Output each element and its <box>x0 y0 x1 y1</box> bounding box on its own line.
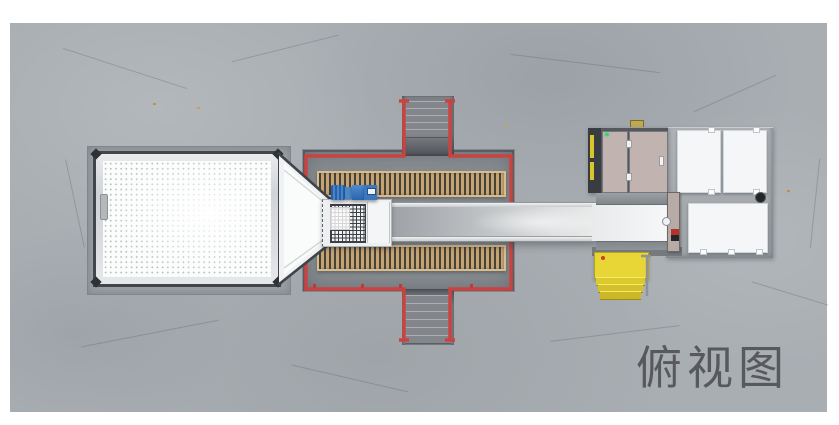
door-hinge <box>626 173 632 181</box>
control-cabinet <box>588 127 668 193</box>
emergency-stop-button <box>671 229 679 235</box>
access-panel-top-right <box>723 130 767 193</box>
green-indicator-light <box>605 133 609 137</box>
stairwell-bottom <box>402 289 454 345</box>
floor-crack <box>63 48 187 89</box>
yellow-stair-step <box>600 291 641 300</box>
infeed-hood-top <box>596 193 668 205</box>
deck-access-hole <box>755 192 766 203</box>
floor-speck <box>197 107 200 109</box>
floor-crack <box>752 281 829 305</box>
walkway-grating-bottom <box>317 245 506 271</box>
cabinet-yellow-strip <box>590 135 594 158</box>
conveyor-belt <box>374 202 602 242</box>
cabinet-yellow-strip <box>590 162 594 180</box>
access-panel-top-left <box>677 130 721 193</box>
cabinet-door-left <box>602 131 628 193</box>
machine-infeed-belt <box>592 204 668 241</box>
railing-post <box>361 284 364 288</box>
railing-post <box>399 284 402 288</box>
panel-latch <box>700 249 707 255</box>
panel-latch <box>708 127 715 133</box>
floor-crack <box>694 75 777 113</box>
feeder-grate-cover <box>330 207 350 230</box>
stairwell-top <box>402 96 454 156</box>
hopper-perforated-floor <box>103 161 271 277</box>
hopper-handle <box>100 194 108 220</box>
platform-marker <box>601 256 605 260</box>
stair-handrail <box>639 254 653 298</box>
belt-surface <box>374 207 602 237</box>
view-label: 俯视图 <box>636 332 789 398</box>
floor-crack <box>65 159 85 247</box>
hopper-frame <box>93 151 281 287</box>
floor-speck <box>787 190 790 192</box>
panel-latch <box>753 127 760 133</box>
screw-feeder-housing <box>322 199 392 247</box>
top-view-scene: 俯视图 <box>0 0 839 425</box>
motor-ribbed-body <box>331 185 345 200</box>
stairwell-shadow <box>402 134 454 156</box>
panel-latch <box>756 249 763 255</box>
access-panel-bottom <box>688 203 768 253</box>
panel-latch <box>708 189 715 195</box>
stair-step <box>405 335 451 344</box>
door-hinge <box>626 140 632 148</box>
infeed-hood-bottom <box>596 241 668 251</box>
gearbox <box>352 185 364 200</box>
floor-crack <box>81 320 219 348</box>
railing-post <box>313 284 316 288</box>
floor-speck <box>153 103 156 105</box>
floor-crack <box>810 159 820 249</box>
panel-latch <box>728 249 735 255</box>
floor-crack <box>291 365 408 393</box>
emergency-stop-box <box>671 229 679 241</box>
floor-crack <box>232 35 339 63</box>
inlet-knob <box>662 217 671 226</box>
motor-coupling <box>345 187 352 199</box>
railing-post <box>470 284 473 288</box>
belt-side-rail <box>374 236 602 242</box>
floor-speck <box>505 124 508 126</box>
motor-label <box>367 188 376 195</box>
door-handle <box>659 156 664 166</box>
floor-crack <box>510 54 659 73</box>
feeder-side-panel <box>367 202 390 243</box>
